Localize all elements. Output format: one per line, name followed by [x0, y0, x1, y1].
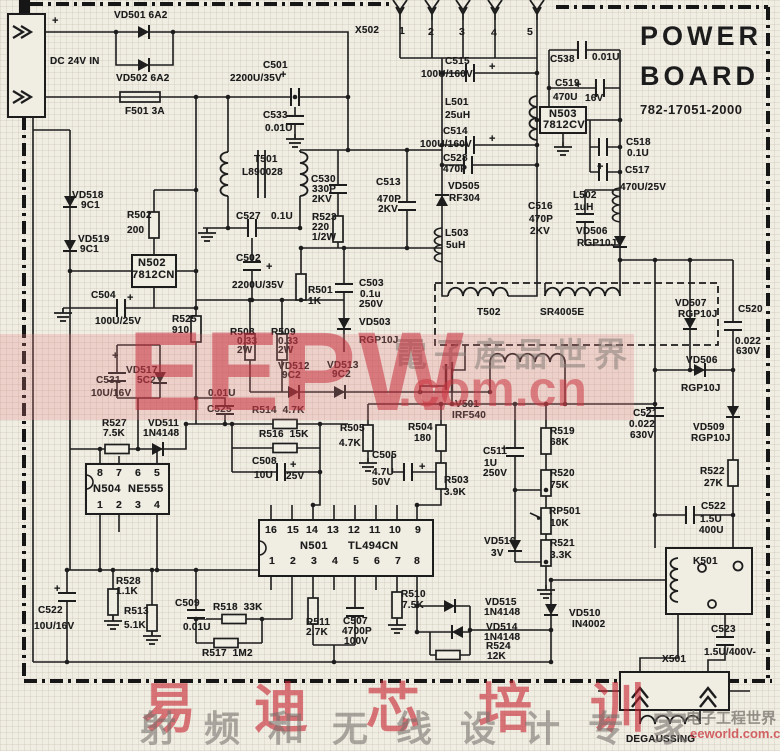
resistor-r519 [541, 428, 551, 454]
cap-c520 [723, 321, 743, 331]
degaussing-coil [640, 716, 700, 724]
cap-c519 [595, 78, 605, 98]
cap-c505 [403, 462, 413, 482]
cap-c530 [328, 184, 348, 194]
board-title-line1: POWER [640, 20, 762, 52]
cap-c531 [107, 372, 127, 382]
diode-vd503 [337, 318, 351, 329]
resistor-r508 [245, 334, 255, 360]
cap-c527 [247, 218, 257, 238]
resistor-rp501 [541, 508, 551, 534]
diode-vd507 [683, 318, 697, 329]
inductor-l503 [435, 228, 443, 262]
cap-c522b [685, 505, 695, 525]
ic-n504-ne555 [86, 464, 169, 514]
cap-c511 [505, 447, 525, 457]
cap-c502 [242, 261, 262, 271]
resistor-r527 [105, 445, 129, 454]
resistor-r524 [436, 651, 460, 660]
transformer-t501 [221, 150, 308, 198]
resistors [105, 212, 738, 660]
cap-c504 [116, 298, 126, 318]
diode-vd515 [444, 599, 455, 613]
cap-c513 [397, 201, 417, 211]
resistor-r525 [191, 316, 201, 342]
resistor-r518 [222, 615, 246, 624]
title-block: POWER BOARD 782-17051-2000 [640, 20, 762, 116]
diode-vd516 [508, 540, 522, 551]
resistor-r513 [147, 605, 157, 631]
cap-c525 [215, 405, 235, 415]
resistor-r505 [363, 425, 373, 451]
resistor-r511 [308, 598, 318, 624]
cap-c515 [465, 63, 475, 83]
cap-c514 [465, 135, 475, 155]
cap-c522a [57, 592, 77, 602]
diode-vd519 [63, 240, 77, 251]
cap-c507 [345, 607, 365, 617]
cap-c516 [575, 213, 595, 223]
resistor-r514 [273, 420, 297, 429]
resistor-r502 [149, 212, 159, 238]
diode-vd518 [63, 196, 77, 207]
board-part-number: 782-17051-2000 [640, 103, 762, 116]
ic-n503-7812cv [540, 107, 586, 133]
resistor-r503 [436, 463, 446, 489]
diode-vd509 [726, 406, 740, 417]
board-title-line2: BOARD [640, 60, 762, 92]
resistor-r523 [333, 216, 343, 242]
cap-c528 [463, 155, 473, 175]
cap-c523 [715, 636, 735, 646]
t502-secondary-winding [490, 354, 565, 362]
diode-vd501 [138, 25, 149, 39]
ic-n501-tl494cn [259, 520, 433, 576]
diode-vd510 [544, 604, 558, 615]
diode-vd513 [334, 385, 345, 399]
resistor-r516 [273, 444, 297, 453]
power-board-schematic: +VD501 6A2DC 24V INVD502 6A2F501 3AX5021… [0, 0, 780, 751]
resistor-r504 [436, 425, 446, 451]
ic-n502-7812cn [132, 255, 176, 287]
fuse-f501 [120, 92, 160, 102]
diode-vd506b [694, 363, 705, 377]
cap-c538 [577, 40, 587, 60]
cap-c533 [285, 115, 305, 125]
inductor-l502 [613, 188, 621, 222]
transformer-t502 [435, 283, 718, 362]
cap-c521 [645, 407, 665, 417]
diode-vd505 [435, 195, 449, 206]
diode-vd514 [452, 625, 463, 639]
resistor-r510 [392, 592, 402, 618]
resistor-r517 [214, 639, 238, 648]
cap-c517 [598, 162, 608, 182]
resistor-r509 [277, 334, 287, 360]
cap-c503 [334, 283, 354, 293]
cap-c518 [598, 137, 608, 157]
cap-c508 [276, 462, 286, 482]
diode-vd517 [153, 372, 167, 383]
resistor-r528 [108, 589, 118, 615]
diode-vd502 [138, 58, 149, 72]
diode-vd512 [288, 385, 299, 399]
resistor-r522 [728, 460, 738, 486]
resistor-r501 [296, 274, 306, 300]
